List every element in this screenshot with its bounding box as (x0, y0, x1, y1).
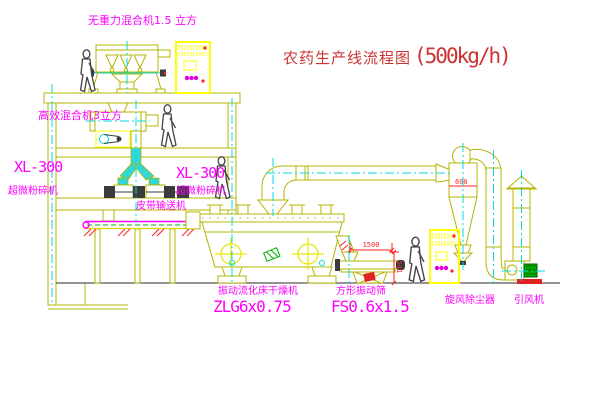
label-sieve-model: FS0.6x1.5 (331, 299, 409, 315)
exhaust-duct (258, 164, 453, 214)
indicator-light-icon (450, 269, 453, 272)
control-panel-2 (430, 230, 459, 283)
label-belt-conveyor: 皮带输送机 (136, 202, 186, 212)
pulverizer-left (104, 178, 145, 198)
fluid-bed-dryer (200, 205, 344, 283)
label-cyclone: 旋风除尘器 (445, 296, 495, 306)
belt-conveyor (83, 210, 200, 283)
process-flow-diagram: 600 1500 541 (0, 0, 600, 403)
indicator-light-icon (203, 46, 206, 49)
svg-text:1500: 1500 (363, 241, 380, 249)
cyclone-dim-label: 600 (455, 178, 468, 186)
indicator-light-icon (452, 234, 455, 237)
floor2-slab (56, 148, 236, 157)
label-top-mixer: 无重力混合机1.5 立方 (88, 15, 197, 26)
worker-figure (409, 237, 424, 281)
worker-figure (81, 50, 96, 92)
pit-floor (48, 283, 128, 309)
title-capacity: (500kg/h) (414, 44, 510, 68)
roof-slab (44, 93, 240, 103)
gravity-free-mixer (88, 45, 170, 93)
title-text: 农药生产线流程图 (283, 47, 411, 68)
label-dryer-name: 振动流化床干燥机 (218, 287, 298, 297)
dimension-1500: 1500 (348, 241, 394, 253)
label-floor2-mixer: 高效混合机3立方 (38, 110, 122, 121)
label-right-mill-model: XL-300 (176, 166, 224, 181)
label-left-mill-name: 超微粉碎机 (8, 187, 58, 197)
svg-text:541: 541 (395, 261, 403, 274)
label-fan: 引风机 (514, 296, 544, 306)
worker-figure (162, 105, 177, 147)
fan-base (517, 279, 542, 284)
indicator-light-icon (201, 79, 204, 82)
discharge-chute (103, 210, 114, 221)
diagram-title: 农药生产线流程图 (500kg/h) (283, 44, 510, 68)
label-sieve-name: 方形振动筛 (336, 287, 386, 297)
control-panel-1 (176, 42, 210, 93)
induced-draft-fan (505, 261, 542, 284)
label-dryer-model: ZLG6x0.75 (213, 299, 291, 315)
bucket-elevator (186, 212, 200, 229)
label-right-mill-name: 超微粉碎机 (176, 187, 226, 197)
label-left-mill-model: XL-300 (14, 160, 62, 175)
